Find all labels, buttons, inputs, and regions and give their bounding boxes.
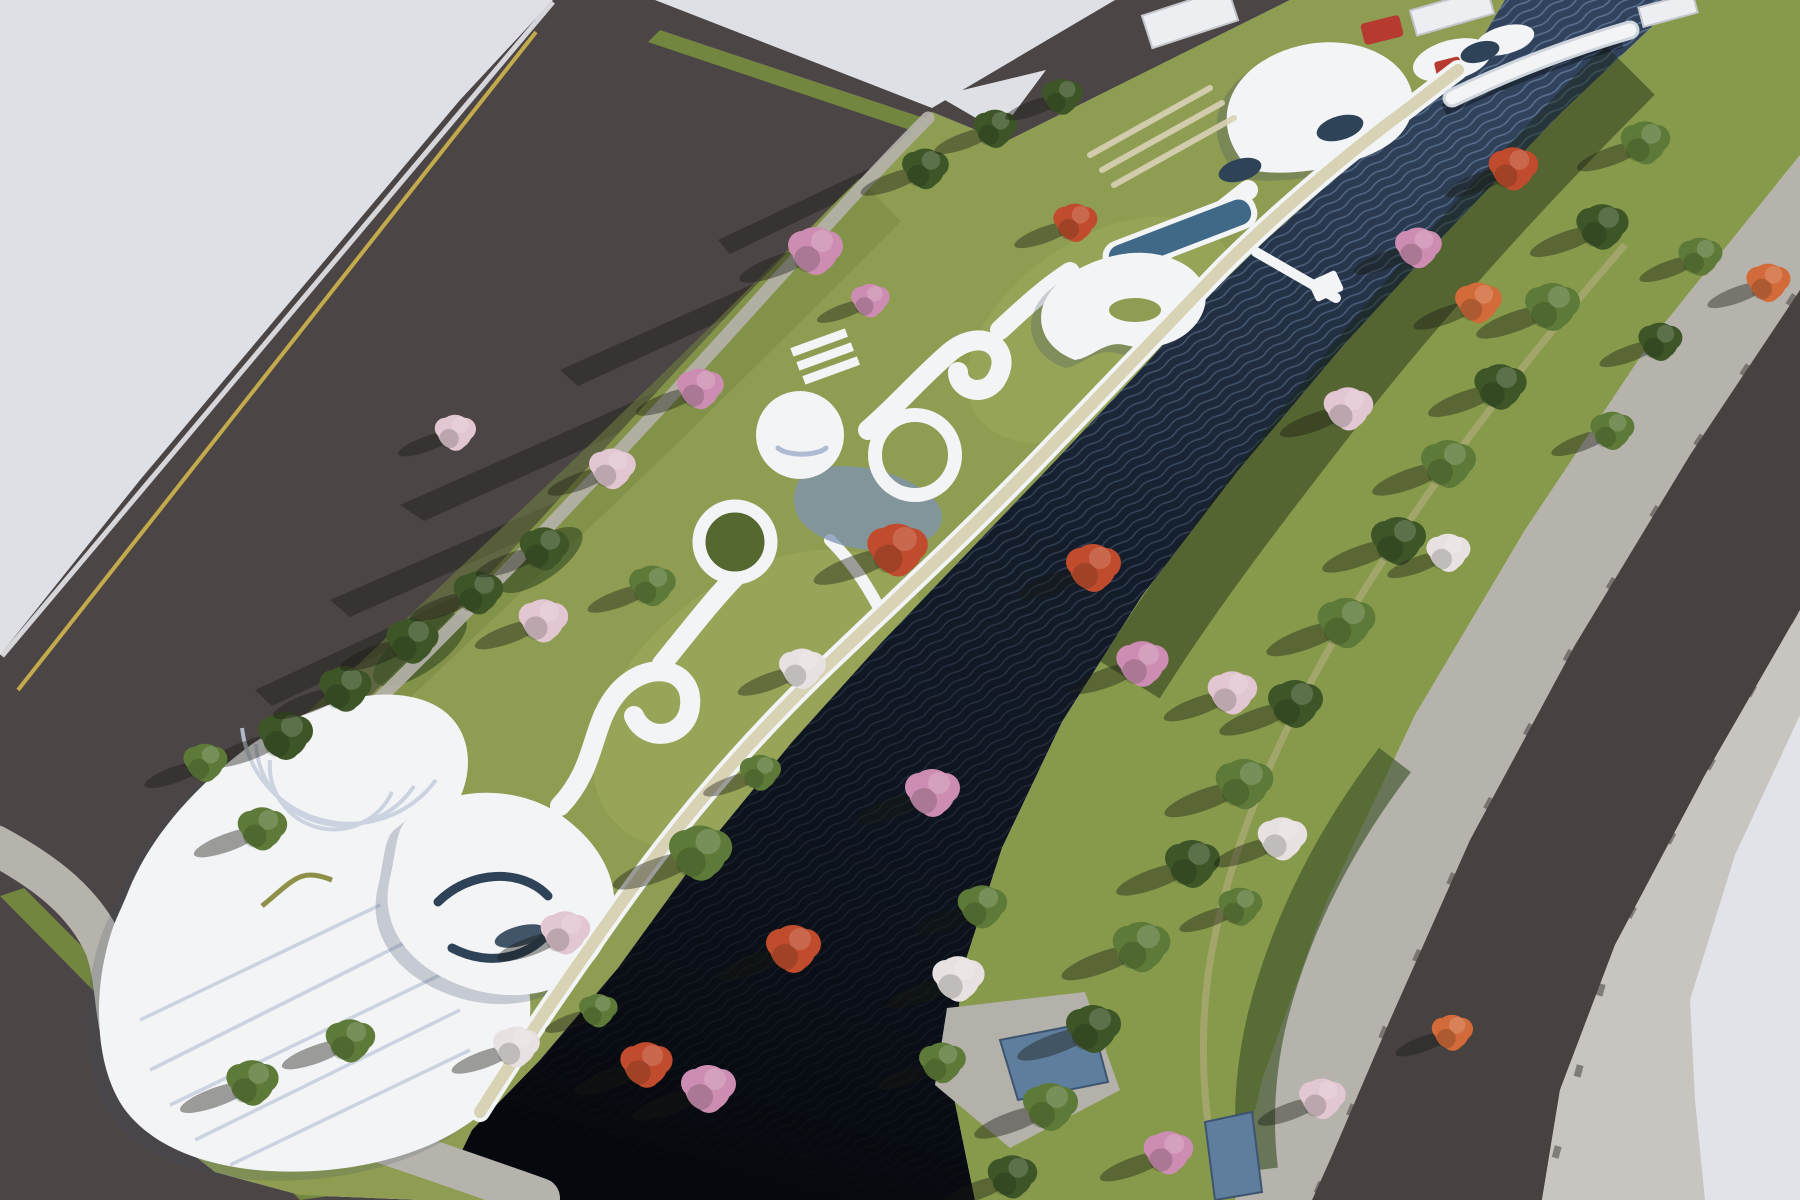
aerial-park-render: [0, 0, 1800, 1200]
canopy-small: [412, 838, 452, 878]
render-canvas: [0, 0, 1800, 1200]
teacup-canopy: [756, 391, 844, 479]
loop-garden: [699, 506, 771, 578]
deck-roof-small: [1205, 1112, 1262, 1200]
courtyard-lawn: [1109, 298, 1161, 322]
canopy-small: [560, 856, 592, 888]
